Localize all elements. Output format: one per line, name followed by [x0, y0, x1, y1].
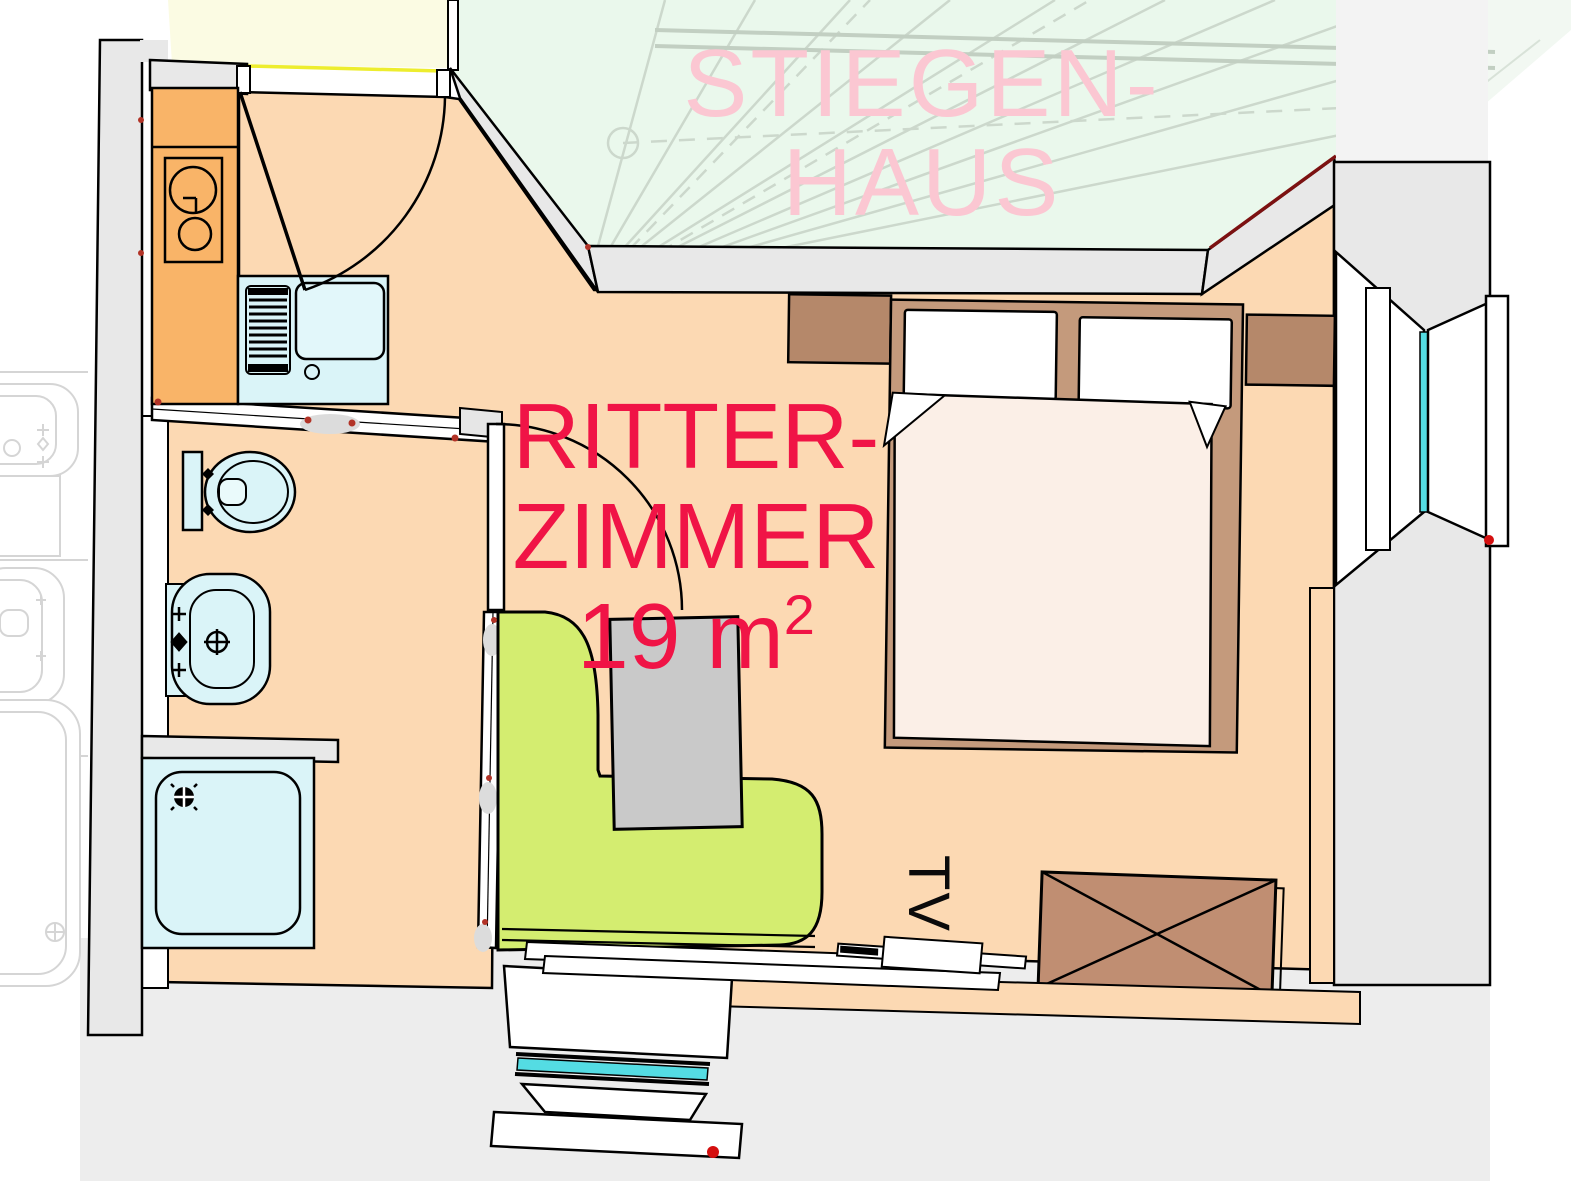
room-area-value: 19 m	[577, 584, 784, 688]
stairwell-wall-bottom	[588, 246, 1208, 294]
neighbor-fixtures	[0, 372, 88, 986]
window-outer-sill	[1486, 296, 1508, 546]
partition-joint	[479, 782, 497, 814]
window-shutter	[1366, 288, 1390, 550]
drainer-ribs	[249, 300, 287, 356]
window-reveal-outer	[1428, 302, 1490, 540]
room-label: RITTER- ZIMMER 19 m2	[496, 386, 896, 699]
room-area: 19 m2	[496, 586, 896, 699]
corridor-stair-separator-wall	[448, 0, 458, 70]
neighbor-counter	[0, 476, 60, 556]
shower-tray	[142, 758, 314, 948]
bedside-shelf-right	[1246, 315, 1335, 386]
neighbor-shower	[0, 700, 80, 986]
right-wall-top	[1336, 0, 1488, 162]
drainer-cap-bottom	[248, 364, 288, 372]
bay-red-marker	[707, 1146, 719, 1158]
pillow-right	[1079, 317, 1232, 408]
stairwell-label-line1: STIEGEN-	[622, 34, 1222, 133]
pillow-left	[904, 310, 1057, 400]
left-outer-wall	[88, 40, 142, 1035]
floor-plan-page: STIEGEN- HAUS RITTER- ZIMMER 19 m2 TV	[0, 0, 1571, 1181]
right-wall-ledge	[1310, 588, 1334, 983]
room-label-line1: RITTER-	[496, 386, 896, 486]
toilet-outlet	[219, 479, 246, 505]
partition-joint	[474, 924, 492, 952]
bedside-shelf-left	[788, 294, 891, 363]
sink-basin	[296, 283, 384, 359]
stairwell-label-line2: HAUS	[622, 133, 1222, 232]
stove-module	[165, 158, 222, 262]
wall-corner-piece	[140, 40, 168, 62]
tv-label: TV	[898, 834, 958, 954]
bay-inner-board	[504, 966, 732, 1058]
sink-drain	[305, 365, 319, 379]
room-label-line2: ZIMMER	[496, 486, 896, 586]
toilet-cistern	[183, 452, 202, 530]
entry-jamb-right	[437, 70, 450, 97]
window-red-marker	[1484, 535, 1494, 545]
stairwell-label: STIEGEN- HAUS	[622, 34, 1222, 232]
room-area-superscript: 2	[784, 583, 815, 646]
washbasin	[172, 574, 270, 704]
drainer-cap-top	[248, 288, 288, 295]
corridor-floor	[168, 0, 448, 68]
mattress	[890, 394, 1215, 746]
